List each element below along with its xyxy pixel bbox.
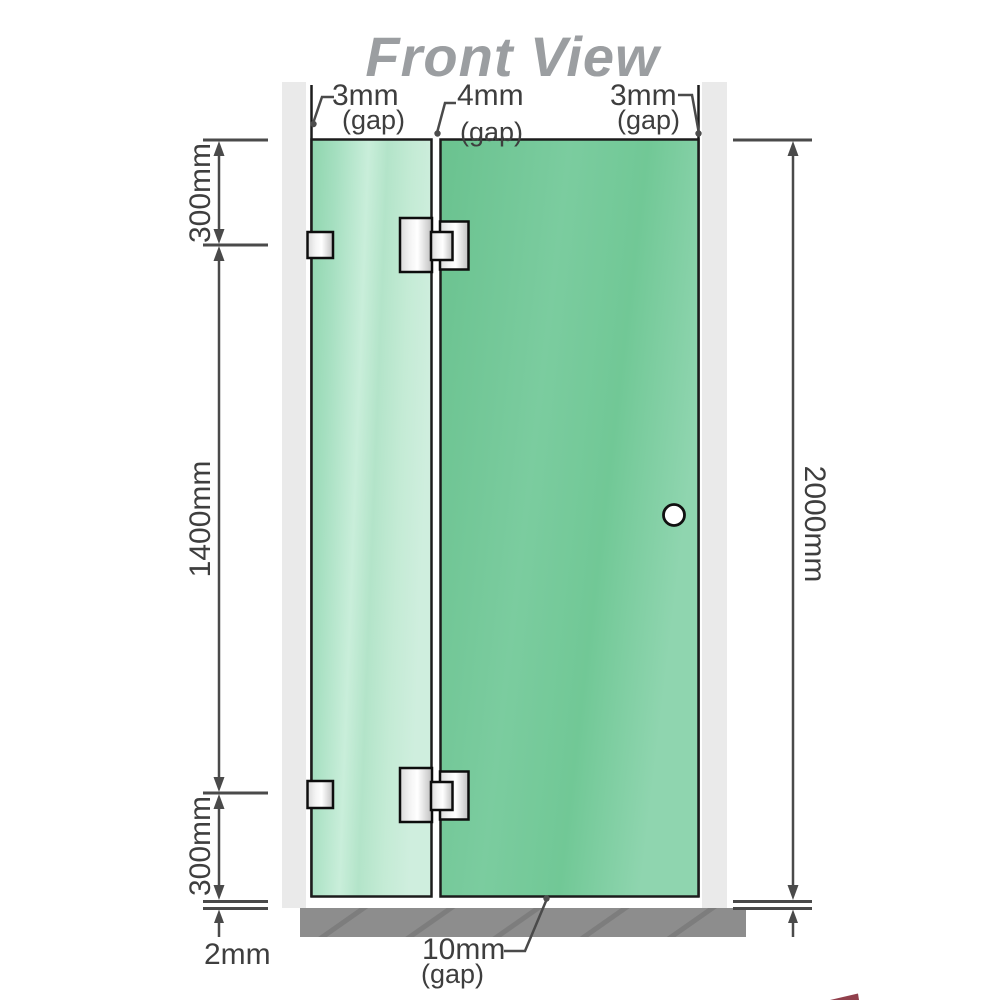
dim-left-middle: 1400mm (184, 461, 218, 578)
watermark-fragment (830, 994, 859, 1000)
gap-left-note: (gap) (342, 107, 405, 134)
gap-right-note: (gap) (617, 107, 680, 134)
dim-left-bottom: 300mm (184, 796, 218, 896)
door-handle-knob (664, 505, 685, 526)
dim-floor-gap: 2mm (204, 940, 271, 970)
left-wall-channel (282, 82, 306, 908)
dim-left-top: 300mm (184, 143, 218, 243)
wall-bracket-top (308, 232, 334, 258)
shower-screen-front-view-diagram: Front View 3mm (gap) 4mm (gap) 3mm (gap)… (0, 0, 1000, 1000)
dim-right-total: 2000mm (797, 466, 831, 583)
hinge-top (400, 218, 469, 272)
right-wall-channel (702, 82, 727, 908)
diagram-canvas (0, 0, 1000, 1000)
gap-middle-value: 4mm (457, 81, 524, 111)
gap-bottom-note: (gap) (421, 961, 484, 988)
door-glass-panel (441, 140, 699, 897)
hinge-bottom (400, 768, 469, 822)
floor-base (300, 908, 746, 937)
gap-middle-note: (gap) (460, 119, 523, 146)
wall-bracket-bottom (308, 781, 334, 808)
